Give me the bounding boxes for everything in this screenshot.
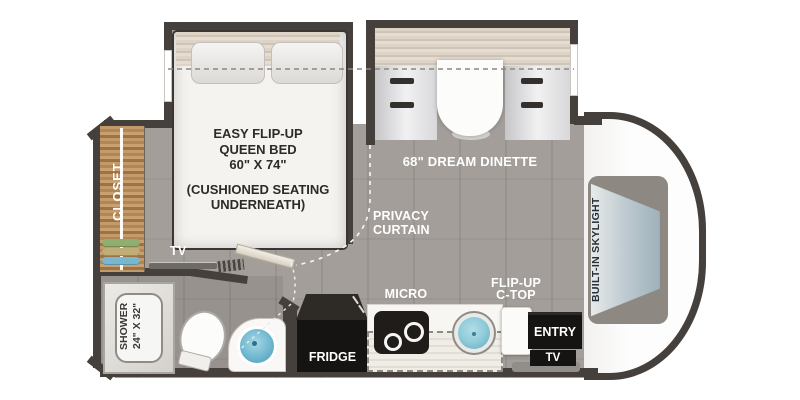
micro-label: MICRO xyxy=(376,288,436,300)
door-swing-arc xyxy=(291,263,295,302)
bath-door-swing xyxy=(238,304,291,351)
privacy-label-line2: CURTAIN xyxy=(373,224,430,238)
privacy-curtain-path xyxy=(296,145,370,265)
privacy-curtain-label: PRIVACY CURTAIN xyxy=(373,210,430,237)
privacy-label-line1: PRIVACY xyxy=(373,210,430,224)
tv-bedroom-label: TV xyxy=(170,245,186,257)
built-in-skylight-label: BUILT-IN SKYLIGHT xyxy=(590,180,610,320)
floorplan: CLOSET EASY FLIP-UP QUEEN BED 60" X 74" … xyxy=(0,0,800,400)
flip-label-line2: C-TOP xyxy=(486,289,546,301)
dashed-lines-overlay xyxy=(0,0,800,400)
flip-up-ctop-label: FLIP-UP C-TOP xyxy=(486,277,546,301)
dinette-label: 68" DREAM DINETTE xyxy=(400,156,540,168)
